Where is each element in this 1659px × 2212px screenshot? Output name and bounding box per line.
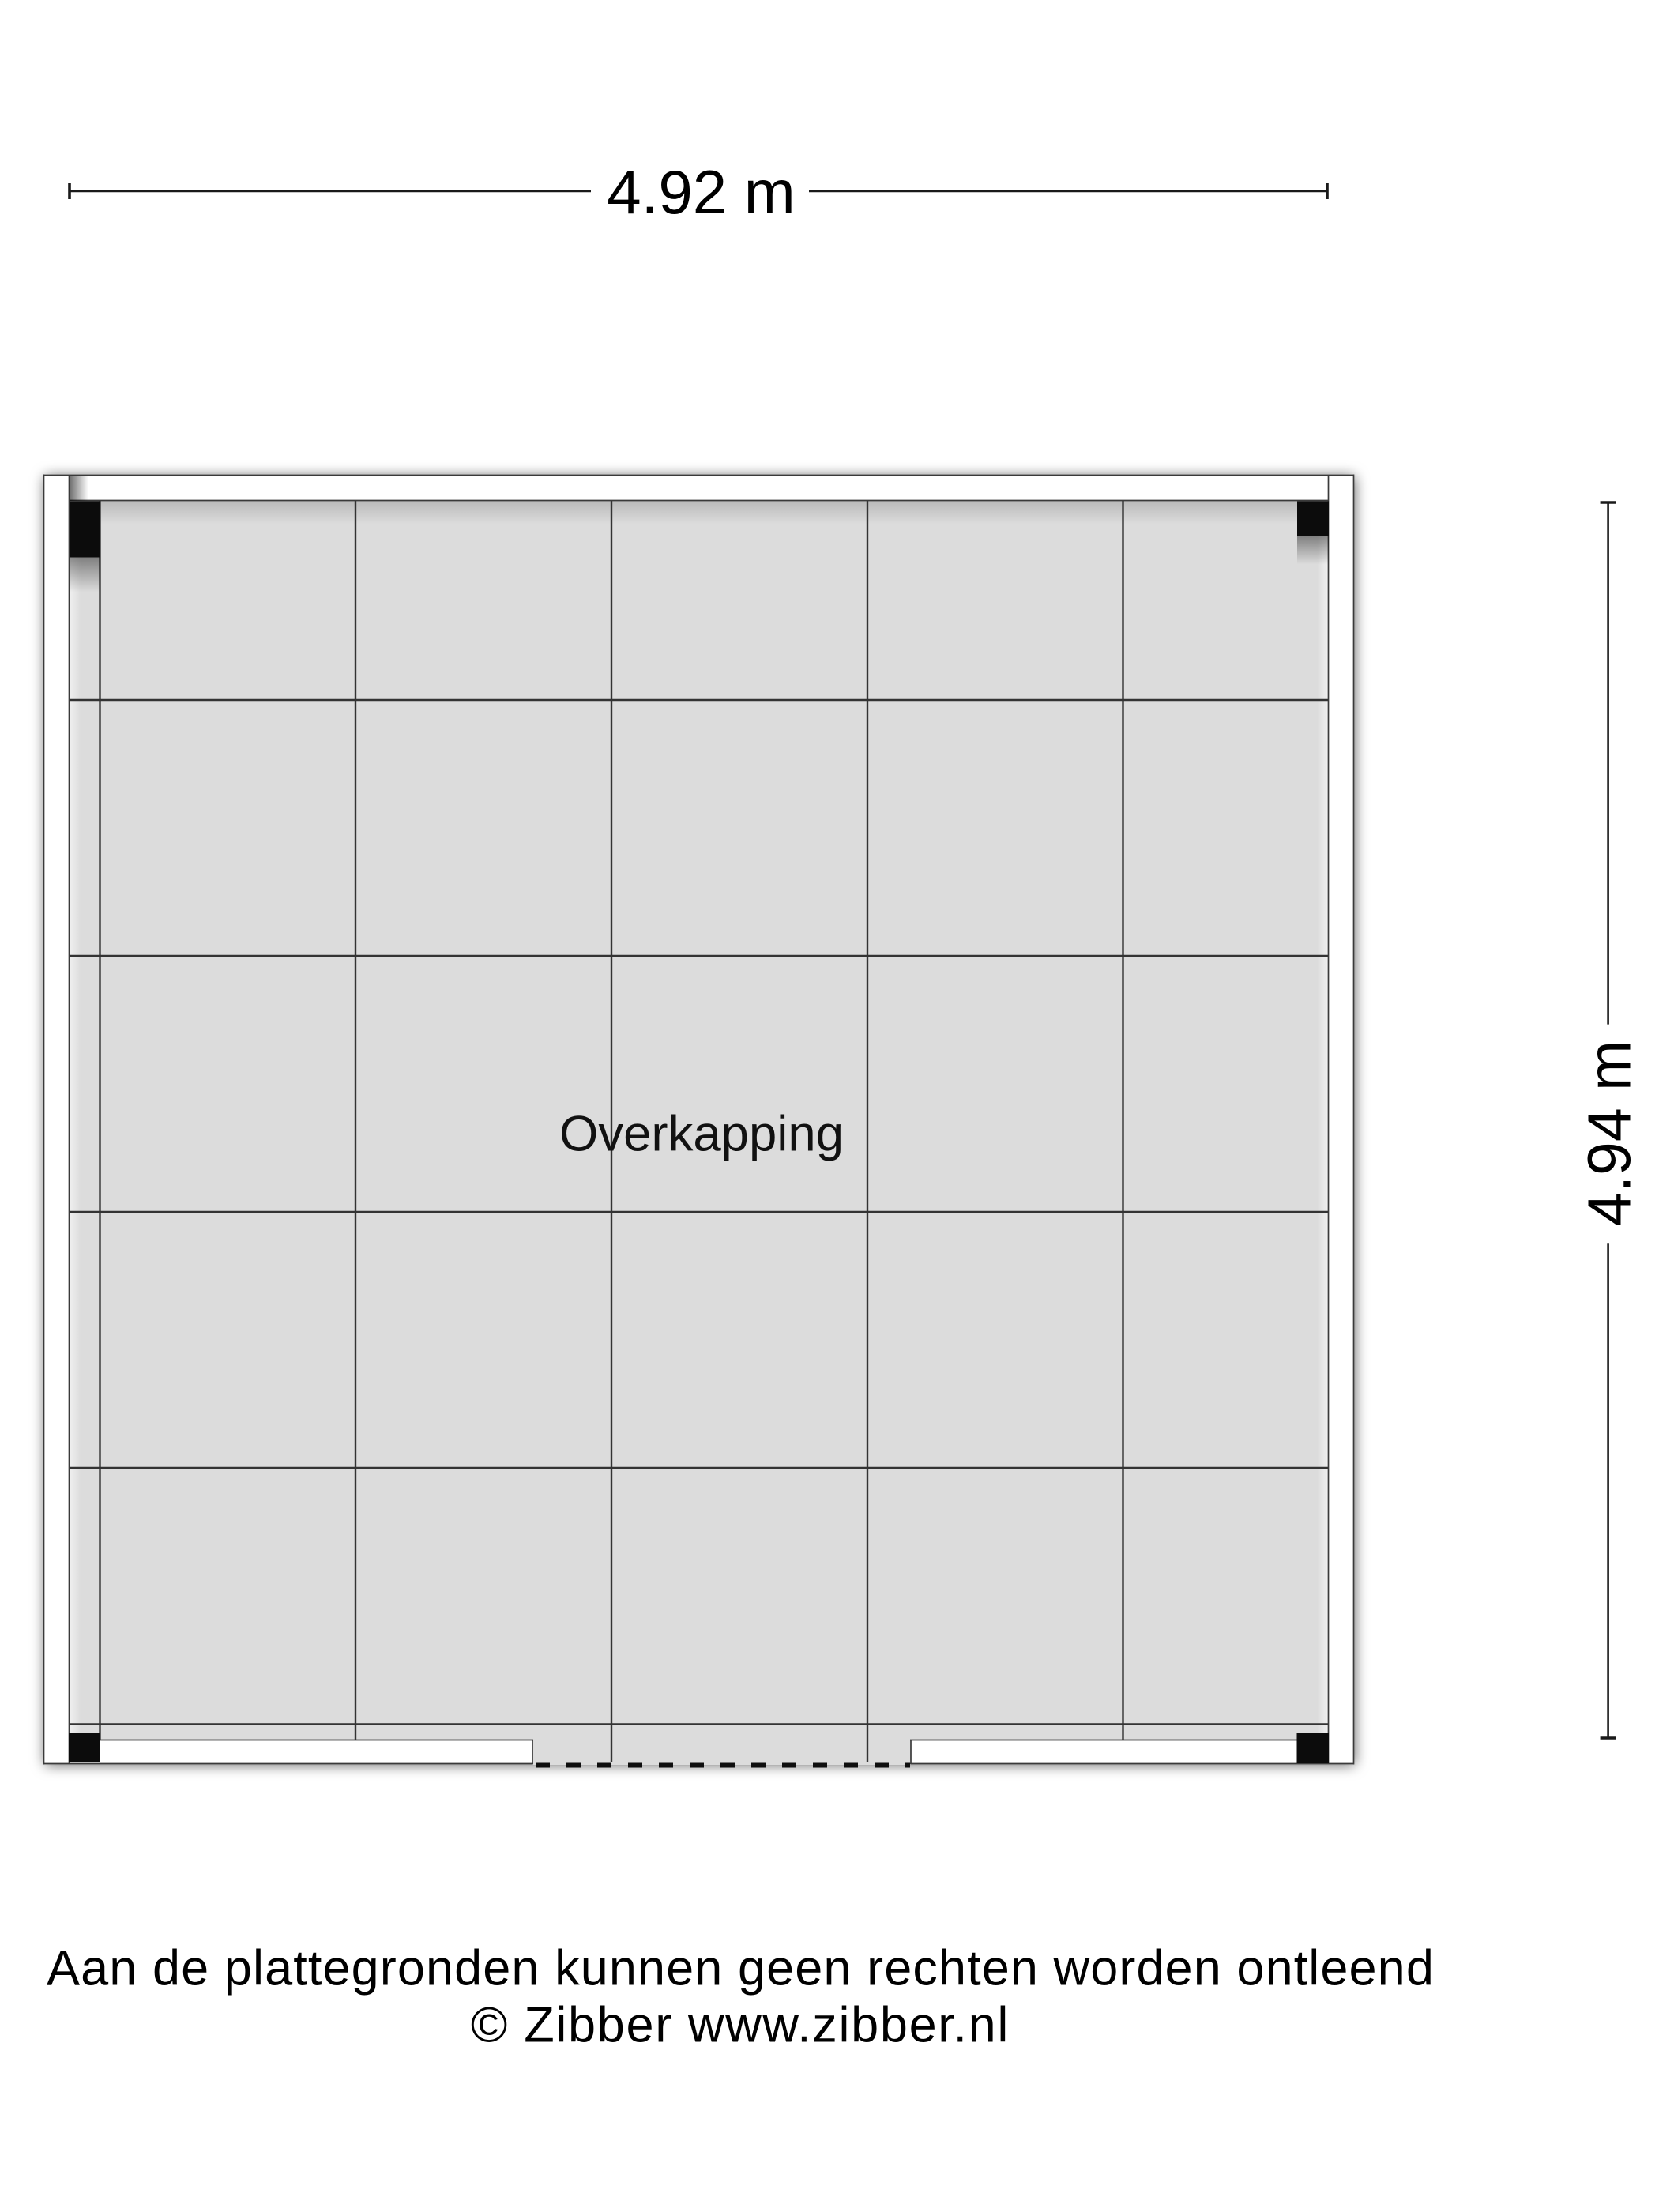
svg-text:4.94 m: 4.94 m	[1575, 1040, 1643, 1226]
svg-text:Overkapping: Overkapping	[559, 1107, 844, 1162]
svg-text:Aan de plattegronden kunnen ge: Aan de plattegronden kunnen geen rechten…	[47, 1941, 1435, 1996]
svg-text:© Zibber www.zibber.nl: © Zibber www.zibber.nl	[471, 1998, 1010, 2053]
svg-text:4.92 m: 4.92 m	[607, 157, 795, 227]
